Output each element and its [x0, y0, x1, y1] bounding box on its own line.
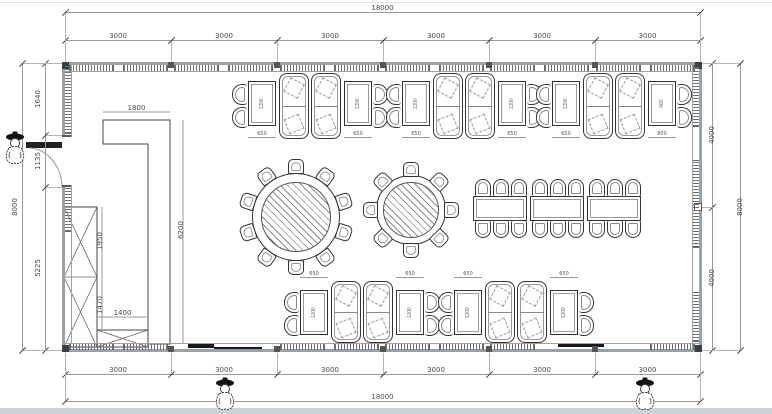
extension-line: [595, 41, 596, 62]
extension-line: [46, 187, 62, 188]
round-table-large-top: [261, 182, 331, 252]
dim-top-seg: 3000: [171, 32, 277, 40]
dining-table: 1200: [552, 81, 580, 126]
seat-cushion: [490, 318, 511, 339]
table-depth-dim: 600: [659, 99, 665, 107]
dim-top-seg: 3000: [595, 32, 700, 40]
dim-right-overall: 8000: [736, 198, 744, 216]
extension-line: [23, 63, 62, 64]
seat-cushion: [522, 318, 543, 339]
sliding-door-panel: [188, 344, 214, 348]
dining-chair: [232, 107, 247, 128]
column-marker: [274, 62, 280, 68]
dining-chair: [536, 84, 551, 105]
table-width-dim: 650: [552, 132, 580, 138]
banquet-chair: [589, 179, 605, 196]
booth-sofa: [485, 281, 515, 343]
seat-cushion: [469, 77, 491, 99]
seat-cushion: [335, 285, 357, 307]
extension-line: [595, 353, 596, 374]
wall-window-hatch: [439, 344, 484, 350]
column-marker: [168, 62, 174, 68]
extension-line: [171, 41, 172, 62]
wall-left-inner: [71, 62, 72, 137]
dim-left-seg: 1135: [34, 152, 42, 170]
wall-window-hatch: [544, 65, 589, 71]
counter-width-dim: 1800: [103, 104, 170, 112]
dining-chair: [677, 84, 692, 105]
seat-cushion: [316, 114, 337, 135]
door-jamb: [62, 135, 71, 137]
dim-left-overall: 8000: [11, 198, 19, 216]
extension-line: [65, 353, 66, 401]
wall-left-inner: [71, 185, 72, 343]
extension-line: [700, 353, 701, 401]
seat-cushion: [336, 318, 357, 339]
banquet-table: [530, 196, 584, 221]
table-width-dim: 800: [648, 132, 676, 138]
dim-bottom-seg: 3000: [595, 366, 700, 374]
wall-window-hatch: [228, 65, 273, 71]
banquet-chair: [625, 221, 641, 238]
banquet-chair: [625, 179, 641, 196]
seat-cushion: [588, 114, 609, 135]
wall-window-hatch: [490, 344, 535, 350]
dining-table: 1200: [248, 81, 276, 126]
booth-sofa: [517, 281, 547, 343]
table-depth-dim: 1200: [465, 307, 471, 318]
seat-cushion: [438, 114, 459, 135]
wall-corner: [695, 345, 702, 352]
booth-sofa: [583, 73, 613, 139]
extension-line: [383, 41, 384, 62]
table-width-dim: 650: [248, 132, 276, 138]
dim-left-seg: 5225: [34, 259, 42, 277]
table-depth-dim: 1200: [311, 307, 317, 318]
dim-right-seg: 4000: [708, 126, 716, 144]
booth-sofa: [311, 73, 341, 139]
column-marker: [592, 62, 598, 68]
end-dining-table: 600: [648, 81, 676, 126]
banquet-chair: [493, 179, 509, 196]
counter-length-dim: 6200: [177, 221, 185, 239]
seat-cushion: [437, 77, 459, 99]
round-table-chair: [403, 162, 419, 177]
column-marker: [380, 346, 386, 352]
banquet-chair: [511, 221, 527, 238]
banquet-chair: [493, 221, 509, 238]
table-width-dim: 650: [396, 272, 424, 278]
column-marker: [168, 346, 174, 352]
dim-top-overall: 18000: [65, 4, 700, 12]
booth-dining-set: 1200 1200 650 650: [386, 73, 544, 141]
extension-line: [489, 41, 490, 62]
table-depth-dim: 1200: [413, 98, 419, 109]
banquet-table: [473, 196, 527, 221]
wall-window-hatch: [65, 188, 71, 232]
dim-line-bottom-overall: [65, 401, 700, 402]
round-table-chair: [444, 202, 459, 218]
banquet-table: [587, 196, 641, 221]
dim-bottom-seg: 3000: [171, 366, 277, 374]
door-jamb: [62, 185, 71, 187]
dim-top-seg: 3000: [489, 32, 595, 40]
booth-dining-set: 1200 1200 650 650: [284, 281, 442, 349]
dining-table: 1200: [344, 81, 372, 126]
booth-dining-set: 1200 1200 650 650: [232, 73, 390, 141]
table-depth-dim: 1200: [355, 98, 361, 109]
dining-chair: [284, 292, 299, 313]
seat-cushion: [284, 114, 305, 135]
dining-chair: [579, 292, 594, 313]
dim-right-seg: 4000: [708, 269, 716, 287]
column-marker: [486, 346, 492, 352]
table-depth-dim: 1200: [563, 98, 569, 109]
cabinet-upper-dim: 1950: [96, 232, 104, 250]
banquet-chair: [475, 179, 491, 196]
extension-line: [46, 135, 62, 136]
dining-chair: [284, 315, 299, 336]
dim-line-left-segments: [45, 63, 46, 350]
seat-cushion: [368, 318, 389, 339]
round-table-chair: [403, 243, 419, 258]
booth-sofa: [279, 73, 309, 139]
booth-sofa: [465, 73, 495, 139]
wall-window-hatch: [693, 160, 699, 248]
dining-chair: [677, 107, 692, 128]
banquet-chair: [589, 221, 605, 238]
booth-sofa: [363, 281, 393, 343]
dining-chair: [438, 315, 453, 336]
booth-sofa: [615, 73, 645, 139]
dim-top-seg: 3000: [383, 32, 489, 40]
booth-dining-set: 1200 600 650 800: [536, 73, 694, 141]
extension-line: [702, 207, 714, 208]
floor-plan-canvas: 18000 3000 3000 3000 3000 3000 3000 3000…: [0, 0, 772, 414]
wall-window-hatch: [693, 67, 699, 127]
cabinet-small-dim: 1400: [97, 309, 148, 317]
wall-window-hatch: [65, 66, 71, 134]
seat-cushion: [470, 114, 491, 135]
seat-cushion: [283, 77, 305, 99]
dining-table: 1200: [402, 81, 430, 126]
extension-line: [383, 353, 384, 374]
booth-dining-set: 1200 1200 650 650: [438, 281, 596, 349]
banquet-chair: [550, 221, 566, 238]
banquet-chair: [532, 179, 548, 196]
wall-window-hatch: [123, 65, 168, 71]
wall-top-inner: [62, 71, 702, 72]
wall-window-hatch: [385, 344, 430, 350]
table-depth-dim: 1200: [259, 98, 265, 109]
dim-bottom-seg: 3000: [65, 366, 171, 374]
banquet-chair: [475, 221, 491, 238]
extension-line: [489, 353, 490, 374]
seat-cushion: [315, 77, 337, 99]
booth-sofa: [331, 281, 361, 343]
booth-sofa: [433, 73, 463, 139]
banquet-chair: [532, 221, 548, 238]
round-table-small-top: [383, 182, 439, 238]
wall-window-hatch: [280, 344, 325, 350]
extension-line: [277, 41, 278, 62]
table-width-dim: 650: [454, 272, 482, 278]
banquet-chair: [568, 179, 584, 196]
wall-window-hatch: [174, 65, 219, 71]
table-depth-dim: 1200: [407, 307, 413, 318]
extension-line: [277, 353, 278, 374]
dim-top-seg: 3000: [277, 32, 383, 40]
banquet-chair: [550, 179, 566, 196]
wall-window-hatch: [69, 65, 114, 71]
wall-window-hatch: [385, 65, 430, 71]
banquet-chair: [607, 179, 623, 196]
dining-table: 1200: [396, 290, 424, 335]
dim-line-left-overall: [22, 63, 23, 350]
table-depth-dim: 1200: [561, 307, 567, 318]
wall-window-hatch: [650, 344, 695, 350]
dim-line-top-overall: [65, 12, 700, 13]
dim-bottom-seg: 3000: [489, 366, 595, 374]
banquet-chair: [607, 221, 623, 238]
extension-line: [702, 350, 740, 351]
seat-cushion: [489, 285, 511, 307]
wall-window-hatch: [334, 344, 379, 350]
wall-window-hatch: [596, 65, 641, 71]
dim-bottom-overall: 18000: [65, 393, 700, 401]
seat-cushion: [620, 114, 641, 135]
seat-cushion: [587, 77, 609, 99]
wall-window-hatch: [439, 65, 484, 71]
column-marker: [380, 62, 386, 68]
column-marker: [486, 62, 492, 68]
dining-table: 1200: [550, 290, 578, 335]
wall-window-hatch: [280, 65, 325, 71]
dim-bottom-seg: 3000: [383, 366, 489, 374]
dining-table: 1200: [300, 290, 328, 335]
extension-line: [702, 63, 740, 64]
door-leaf: [26, 142, 62, 148]
seat-cushion: [619, 77, 641, 99]
table-width-dim: 650: [344, 132, 372, 138]
extension-line: [171, 353, 172, 374]
column-marker: [592, 346, 598, 352]
table-width-dim: 650: [300, 272, 328, 278]
dining-chair: [579, 315, 594, 336]
wall-window-hatch: [123, 344, 168, 350]
round-table-chair: [363, 202, 378, 218]
dining-chair: [438, 292, 453, 313]
wall-corner: [62, 345, 69, 352]
round-table-chair: [288, 260, 304, 275]
wall-window-hatch: [650, 65, 695, 71]
table-width-dim: 650: [402, 132, 430, 138]
seat-cushion: [367, 285, 389, 307]
dining-chair: [536, 107, 551, 128]
dining-table: 1200: [454, 290, 482, 335]
dim-bottom-seg: 3000: [277, 366, 383, 374]
wall-window-hatch: [69, 344, 114, 350]
table-depth-dim: 1200: [509, 98, 515, 109]
wall-window-hatch: [334, 65, 379, 71]
dining-table: 1200: [498, 81, 526, 126]
wall-window-hatch: [693, 292, 699, 342]
extension-line: [23, 350, 62, 351]
dim-left-seg: 1640: [34, 90, 42, 108]
dining-chair: [386, 107, 401, 128]
wall-window-hatch: [490, 65, 535, 71]
extension-line: [700, 13, 701, 62]
column-marker: [274, 346, 280, 352]
dining-chair: [232, 84, 247, 105]
seat-cushion: [521, 285, 543, 307]
dim-top-seg: 3000: [65, 32, 171, 40]
extension-line: [65, 13, 66, 62]
dining-chair: [386, 84, 401, 105]
banquet-chair: [511, 179, 527, 196]
table-width-dim: 650: [498, 132, 526, 138]
table-width-dim: 650: [550, 272, 578, 278]
round-table-chair: [288, 159, 304, 174]
banquet-chair: [568, 221, 584, 238]
